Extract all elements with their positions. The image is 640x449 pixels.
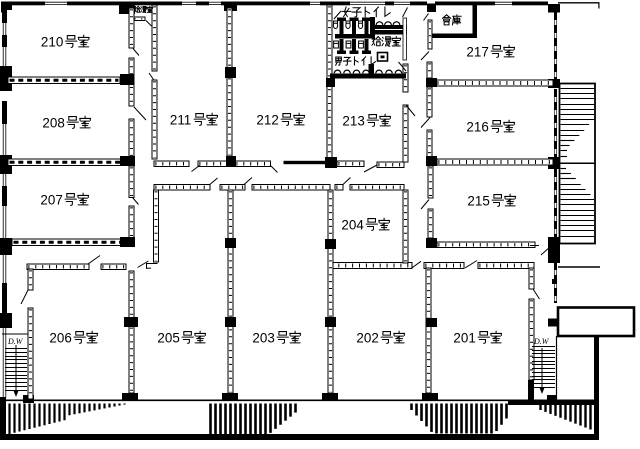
svg-text:212: 212 <box>256 113 278 128</box>
svg-text:D.W: D.W <box>7 337 24 346</box>
svg-text:207: 207 <box>40 193 62 208</box>
svg-text:213: 213 <box>342 114 364 129</box>
svg-text:215: 215 <box>467 194 489 209</box>
svg-text:210: 210 <box>41 35 63 50</box>
svg-text:202: 202 <box>356 331 378 346</box>
svg-text:217: 217 <box>466 45 488 60</box>
svg-text:204: 204 <box>341 218 364 233</box>
svg-text:203: 203 <box>252 331 274 346</box>
svg-text:D.W: D.W <box>533 337 550 346</box>
svg-text:211: 211 <box>170 113 191 128</box>
svg-text:208: 208 <box>42 116 64 131</box>
svg-text:205: 205 <box>157 331 179 346</box>
svg-text:201: 201 <box>453 331 475 346</box>
svg-text:206: 206 <box>49 331 71 346</box>
svg-text:216: 216 <box>466 120 488 135</box>
